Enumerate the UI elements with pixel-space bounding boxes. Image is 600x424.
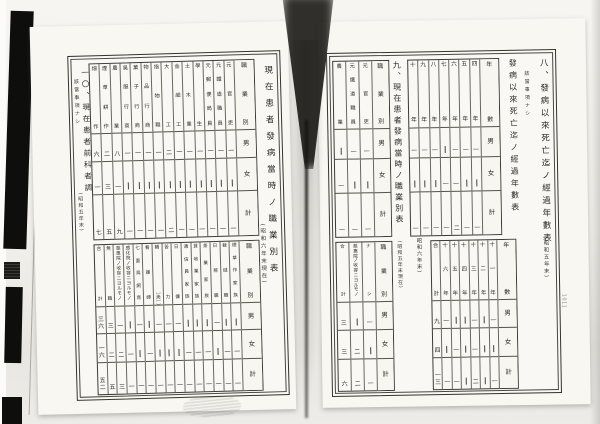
value-cell: 一 bbox=[450, 128, 460, 158]
row-label-cell: 男 bbox=[236, 130, 256, 159]
row-label-cell: 男 bbox=[376, 302, 392, 330]
scan-smudge bbox=[183, 395, 242, 418]
row-label-cell: 計 bbox=[499, 357, 518, 388]
value-cell: 一 bbox=[461, 128, 471, 158]
column-header-cell: 職業別 bbox=[239, 241, 260, 304]
row-label-cell: 計 bbox=[243, 359, 263, 391]
column-header-cell: 職業別 bbox=[372, 61, 389, 129]
value-cell bbox=[334, 130, 347, 160]
value-cell: 二 bbox=[351, 359, 364, 390]
section10-note: 該當事項ナシ bbox=[73, 79, 81, 127]
occupation-table-s6-band2: 職業別男女計煙草作家族一一裁縫職一一日稼職一一茶業家族一一貸地業家族一一通信員家… bbox=[93, 240, 263, 396]
right-page-content: 八、發病以來死亡迄ノ經過年數表 (昭和五年末) 該當事項ナシ 發病以來死亡迄ノ經… bbox=[331, 54, 557, 392]
elapsed-years-table-band1: 年數男女計四年一一五年一一六年一一二七年一一八年一一九年一一十年一一 bbox=[407, 58, 502, 237]
row-label-cell: 男 bbox=[498, 300, 516, 328]
scan-artifact-bar bbox=[4, 262, 20, 279]
column-header-cell: 職業別 bbox=[234, 60, 255, 131]
value-cell bbox=[350, 302, 362, 330]
row-label-cell: 計 bbox=[238, 191, 258, 236]
value-cell: 一 bbox=[409, 128, 419, 158]
scan-artifact-bar bbox=[4, 287, 23, 363]
section9-title: 九、現在患者發病當時ノ職業別表 bbox=[391, 61, 405, 226]
section8-title: 八、發病以來死亡迄ノ經過年數表 bbox=[537, 58, 552, 246]
value-cell: 一 bbox=[420, 128, 430, 158]
value-cell: 三 bbox=[338, 331, 351, 360]
column-header-cell: 年數 bbox=[497, 240, 516, 300]
value-cell: 一 bbox=[348, 193, 361, 236]
table-header-column: 職業別男女計 bbox=[238, 241, 262, 391]
column-header-cell: 合計 bbox=[336, 243, 349, 303]
table-header-column: 職業別男女計 bbox=[233, 60, 258, 235]
table-header-column: 年數男女計 bbox=[496, 240, 518, 388]
row-label-cell: 男 bbox=[241, 303, 261, 331]
value-cell bbox=[440, 128, 450, 158]
table-title-elapsed-years-s6: 發病以來死亡迄ノ經過年數表 bbox=[507, 59, 521, 215]
section10-caption: (昭和五年末) bbox=[77, 193, 85, 233]
scan-artifact-bar bbox=[2, 397, 22, 424]
value-cell bbox=[348, 159, 361, 193]
row-label-cell: 女 bbox=[499, 328, 518, 357]
value-cell bbox=[364, 330, 377, 359]
value-cell: 六 bbox=[338, 360, 351, 391]
row-label-cell: 女 bbox=[237, 158, 257, 192]
table-header-column: 職業別男女計 bbox=[374, 242, 394, 390]
value-cell: 一 bbox=[360, 129, 373, 159]
table-header-column: 年數男女計 bbox=[479, 59, 501, 234]
value-cell: 二 bbox=[351, 330, 364, 359]
left-page-content: 現在患者發病當時ノ職業別表 (昭和六年末現在) 職業別男女計元官吏一一元鐵道職員… bbox=[72, 55, 284, 396]
row-label-cell: 計 bbox=[377, 359, 394, 390]
value-cell: 三 bbox=[337, 303, 349, 331]
column-header-cell: 慈惠院ノ收容ニヨルモノ bbox=[349, 242, 362, 302]
row-label-cell: 女 bbox=[377, 330, 394, 359]
row-label-cell: 女 bbox=[482, 157, 501, 191]
table-header-column: 職業別男女計 bbox=[371, 61, 391, 236]
value-cell: 一 bbox=[430, 128, 440, 158]
section8-note: 該當事項ナシ bbox=[523, 70, 531, 118]
row-label-cell: 計 bbox=[374, 193, 391, 236]
section9-caption: (昭和五年末現在) bbox=[396, 241, 404, 289]
value-cell: 一 bbox=[363, 302, 375, 330]
row-label-cell: 女 bbox=[242, 330, 262, 360]
occupation-table-s5-band1: 職業別男女計元官吏一一元鐵道職員一一農業一一 bbox=[332, 60, 392, 238]
right-margin-page-number: 1011 bbox=[560, 294, 566, 309]
scanned-book-spread: { "colors": { "paper": "#f9f8f4", "ink":… bbox=[0, 0, 600, 424]
row-label-cell: 男 bbox=[481, 127, 500, 157]
column-header-cell: 年數 bbox=[480, 59, 499, 127]
row-label-cell: 男 bbox=[373, 129, 390, 159]
value-cell: 一 bbox=[347, 129, 360, 159]
value-cell: 一 bbox=[471, 127, 481, 157]
occupation-table-s6-band1: 職業別男女計元官吏一一元鐵道職員一一元郵便局員一一學生一一土木業一一金細工一一大… bbox=[88, 59, 259, 241]
scan-background: 現在患者發病當時ノ職業別表 (昭和六年末現在) 職業別男女計元官吏一一元鐵道職員… bbox=[0, 0, 600, 424]
value-cell bbox=[361, 159, 374, 193]
value-cell: 一 bbox=[364, 359, 377, 390]
left-page-frame: 現在患者發病當時ノ職業別表 (昭和六年末現在) 職業別男女計元官吏一一元鐵道職員… bbox=[67, 50, 290, 401]
table-caption-elapsed-years-s6: (昭和六年末) bbox=[414, 234, 423, 273]
occupation-table-s5-band2: 職業別男女計ナシ一一慈惠院ノ收容ニヨルモノ二二合計三三六 bbox=[335, 241, 395, 392]
section8-caption: (昭和五年末) bbox=[541, 236, 550, 278]
row-label-cell: 女 bbox=[374, 159, 391, 193]
column-header-cell: ナシ bbox=[362, 242, 375, 302]
book-gutter-line bbox=[305, 120, 308, 418]
column-header-cell: 職業別 bbox=[375, 242, 392, 302]
left-margin-page-number: 1011 bbox=[154, 292, 160, 307]
elapsed-years-table-band2: 年數男女計十一年一一十二年十三年一一二十四年十五年一一十六年一一合計九四一三 bbox=[430, 239, 519, 390]
value-cell: 一 bbox=[335, 160, 348, 194]
scan-edge-shade bbox=[590, 0, 600, 424]
right-page-frame: 八、發病以來死亡迄ノ經過年數表 (昭和五年末) 該當事項ナシ 發病以來死亡迄ノ經… bbox=[326, 49, 562, 397]
row-label-cell: 計 bbox=[482, 191, 501, 234]
value-cell: 一 bbox=[361, 193, 374, 236]
value-cell: 一 bbox=[335, 194, 348, 237]
